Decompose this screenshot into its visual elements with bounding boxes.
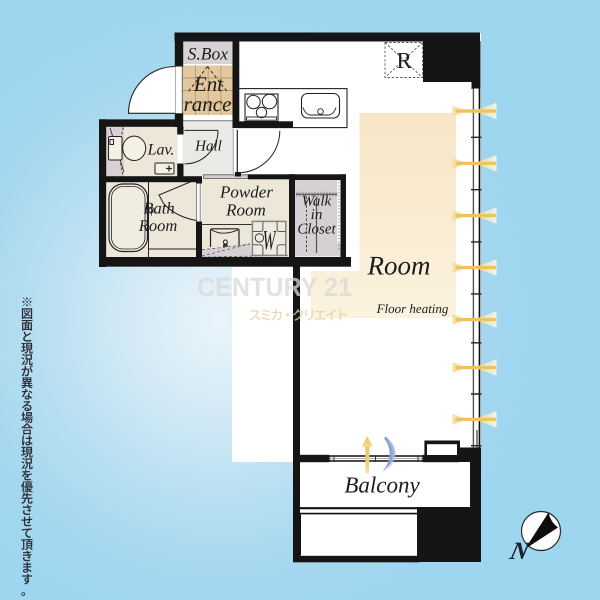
svg-text:Powder: Powder bbox=[219, 183, 273, 202]
svg-text:S.Box: S.Box bbox=[188, 44, 229, 64]
svg-text:Room: Room bbox=[367, 251, 431, 281]
svg-text:Lav.: Lav. bbox=[147, 142, 175, 159]
svg-text:Bath: Bath bbox=[143, 199, 174, 218]
svg-text:R: R bbox=[397, 48, 413, 73]
svg-text:Floor heating: Floor heating bbox=[376, 301, 449, 316]
svg-text:Room: Room bbox=[138, 216, 178, 235]
svg-text:Closet: Closet bbox=[297, 222, 336, 238]
svg-text:rance: rance bbox=[184, 92, 232, 116]
svg-text:Hall: Hall bbox=[194, 139, 222, 155]
svg-text:N: N bbox=[506, 538, 533, 565]
svg-text:W: W bbox=[263, 226, 277, 257]
svg-text:CENTURY 21: CENTURY 21 bbox=[197, 272, 352, 302]
svg-text:Room: Room bbox=[225, 201, 266, 220]
svg-text:Balcony: Balcony bbox=[344, 473, 420, 498]
